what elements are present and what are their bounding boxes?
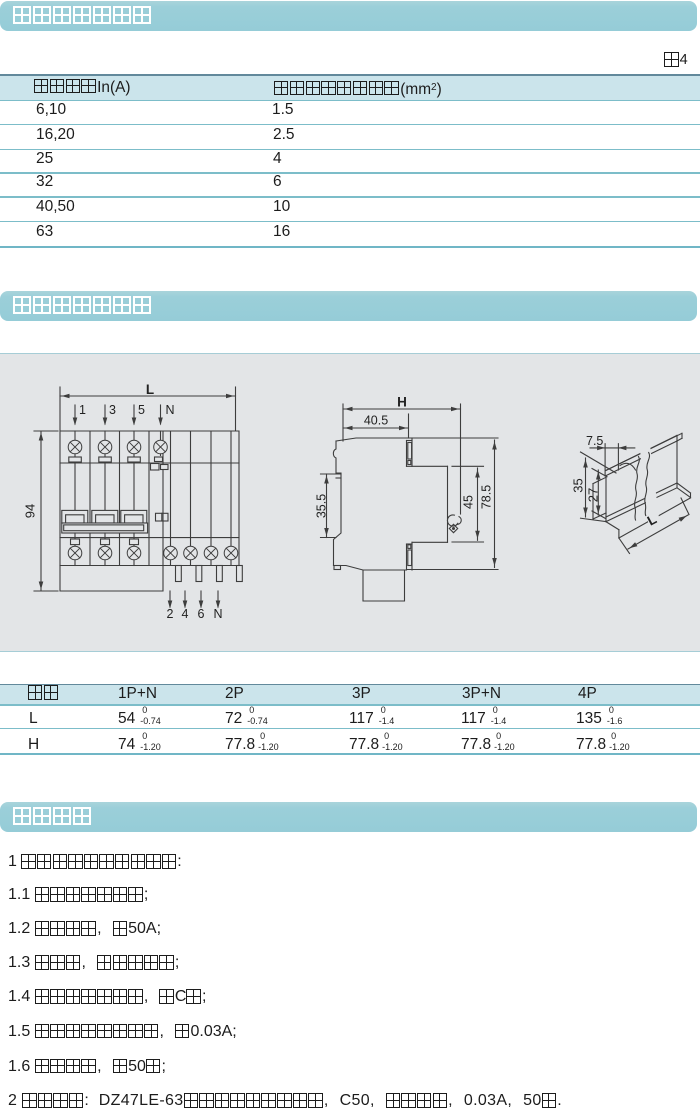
- svg-text:4: 4: [182, 607, 189, 621]
- svg-text:H: H: [397, 395, 407, 410]
- svg-text:78.5: 78.5: [480, 485, 494, 509]
- svg-text:3: 3: [109, 403, 116, 417]
- svg-text:N: N: [213, 607, 222, 621]
- svg-text:N: N: [166, 403, 175, 417]
- svg-text:35: 35: [571, 478, 586, 492]
- svg-text:1: 1: [79, 403, 86, 417]
- svg-text:40.5: 40.5: [364, 414, 388, 428]
- svg-text:L: L: [146, 382, 154, 397]
- svg-text:7.5: 7.5: [586, 434, 603, 448]
- svg-text:27: 27: [586, 488, 601, 502]
- svg-text:45: 45: [462, 495, 476, 509]
- svg-text:5: 5: [138, 403, 145, 417]
- svg-text:94: 94: [23, 504, 38, 518]
- svg-text:2: 2: [167, 607, 174, 621]
- svg-text:6: 6: [198, 607, 205, 621]
- svg-text:35.5: 35.5: [315, 494, 329, 518]
